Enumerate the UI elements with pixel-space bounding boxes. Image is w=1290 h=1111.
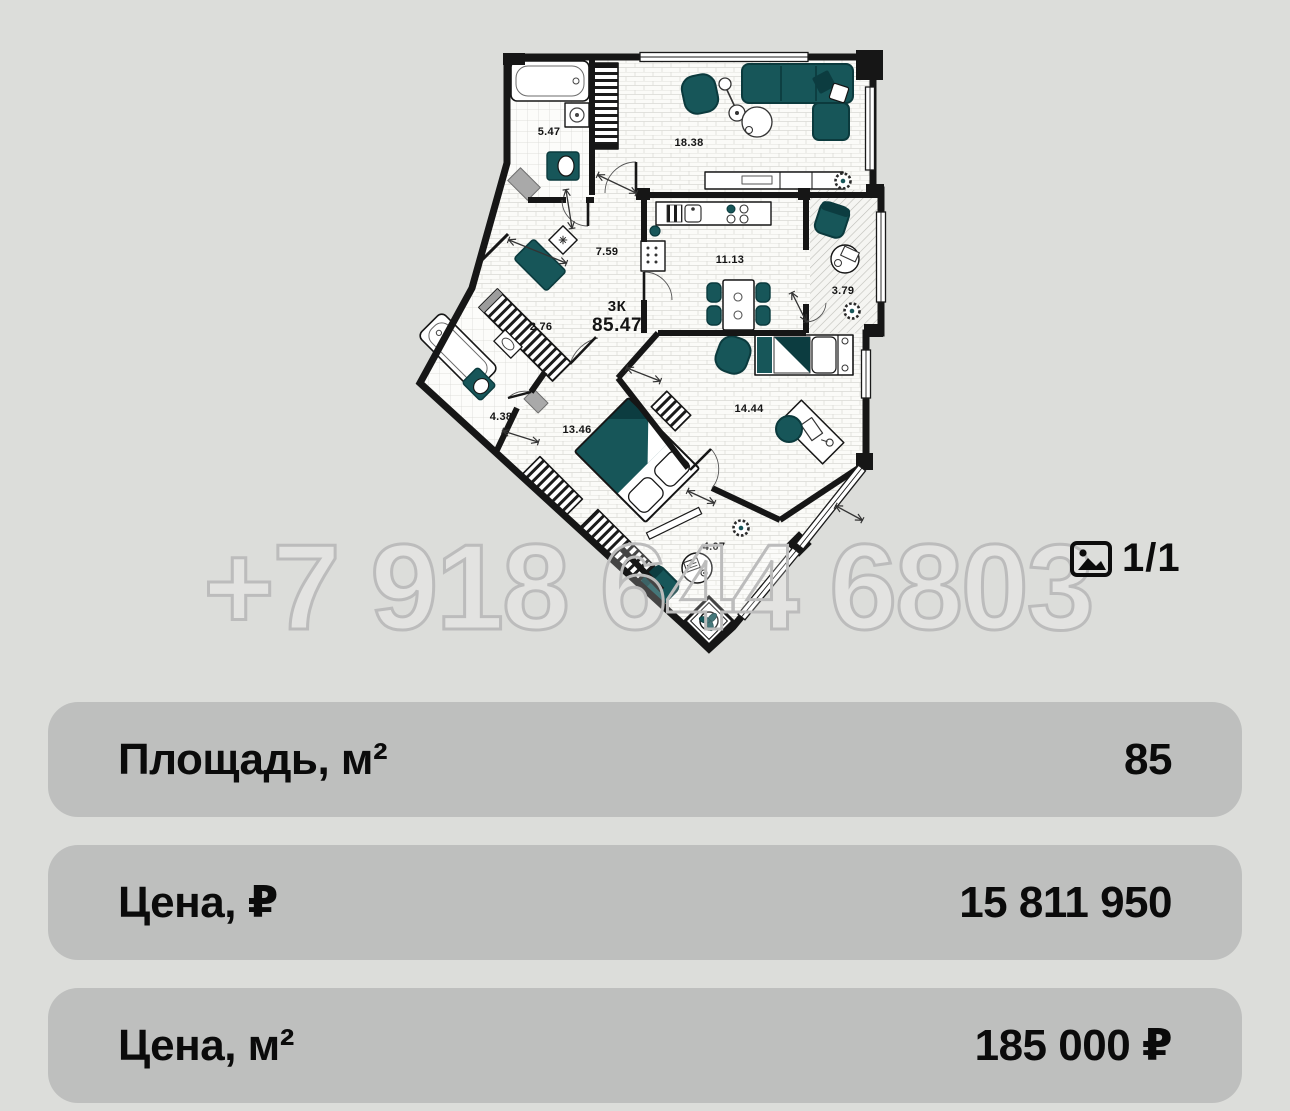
listing-details: Площадь, м² 85 Цена, ₽ 15 811 950 Цена, … (48, 702, 1242, 1111)
wardrobe-rack (592, 63, 618, 149)
flat-type-label: 3К (608, 298, 627, 315)
price-row-value: 15 811 950 (959, 878, 1172, 928)
area-hallway: 7.59 (596, 246, 619, 258)
area-bedroom: 13.46 (562, 424, 591, 436)
loggia-table-2 (682, 553, 712, 583)
tv-console (705, 172, 843, 189)
area-row-label: Площадь, м² (118, 735, 387, 785)
area-living-room: 18.38 (674, 137, 703, 149)
toilet (547, 152, 579, 180)
gallery-counter-text: 1/1 (1122, 536, 1181, 581)
area-bathroom: 5.47 (538, 126, 561, 138)
photos-icon (1068, 539, 1114, 579)
area-bathroom-2: 4.38 (490, 411, 513, 423)
flat-total-area-label: 85.47 (592, 315, 642, 336)
single-bed (755, 335, 853, 375)
kitchen-counter (656, 202, 771, 225)
area-loggia: 3.79 (832, 285, 855, 297)
bathtub (511, 61, 589, 101)
price-per-m2-row: Цена, м² 185 000 ₽ (48, 988, 1242, 1103)
price-per-m2-row-label: Цена, м² (118, 1021, 294, 1071)
area-wardrobe: 2.76 (530, 321, 553, 333)
area-row: Площадь, м² 85 (48, 702, 1242, 817)
floor-plan-image[interactable]: 5.47 18.38 7.59 11.13 3.79 2.76 4.38 13.… (415, 45, 895, 660)
area-bedroom-2: 14.44 (734, 403, 764, 415)
price-per-m2-row-value: 185 000 ₽ (975, 1020, 1172, 1071)
area-kitchen: 11.13 (716, 254, 744, 266)
area-row-value: 85 (1124, 735, 1172, 785)
price-row-label: Цена, ₽ (118, 877, 278, 928)
desk-chair (776, 416, 802, 442)
washing-machine (565, 103, 589, 127)
listing-photo-card: 5.47 18.38 7.59 11.13 3.79 2.76 4.38 13.… (0, 0, 1290, 1111)
area-loggia-2: 4.07 (703, 541, 726, 553)
gallery-counter: 1/1 (1068, 536, 1181, 581)
price-row: Цена, ₽ 15 811 950 (48, 845, 1242, 960)
loggia-table (831, 245, 859, 273)
